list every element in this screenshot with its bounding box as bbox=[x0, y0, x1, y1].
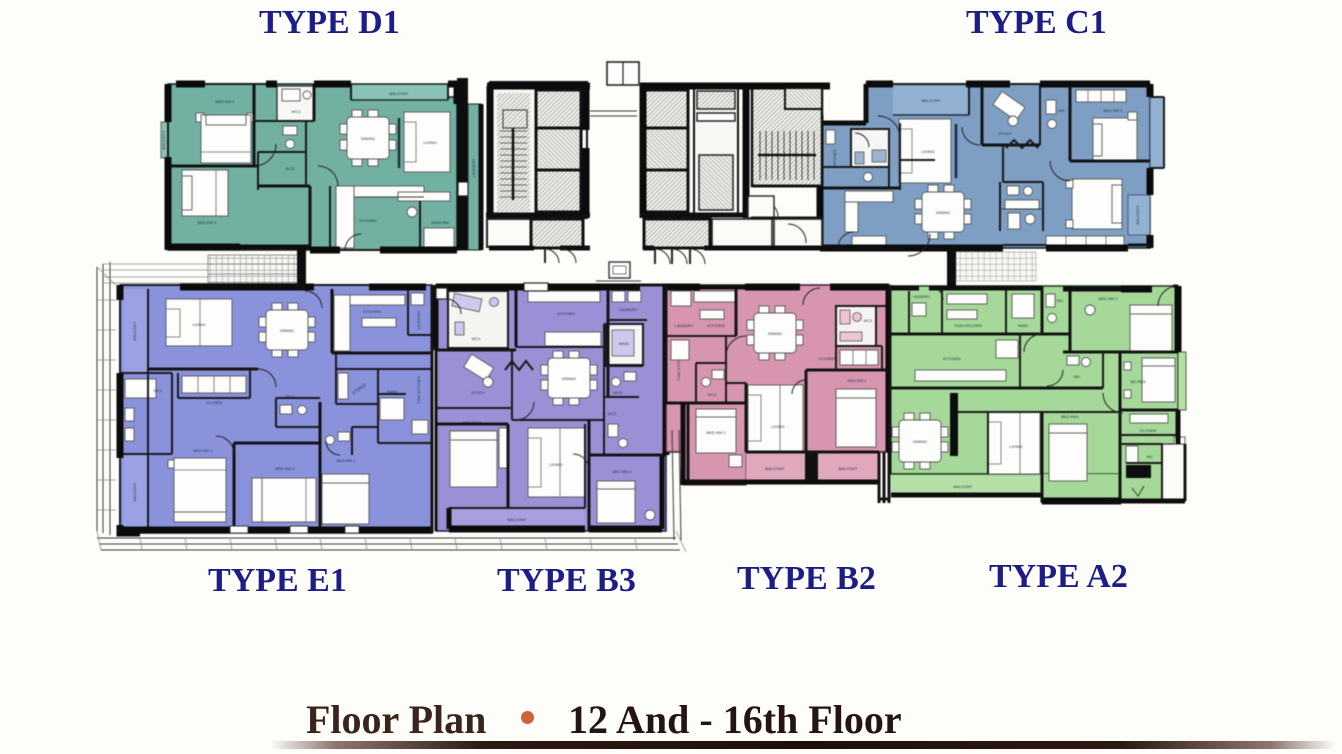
svg-text:WC2: WC2 bbox=[708, 392, 718, 397]
svg-text:DINING: DINING bbox=[361, 136, 375, 141]
svg-text:DINING: DINING bbox=[936, 210, 950, 215]
svg-text:WC2: WC2 bbox=[608, 411, 618, 416]
svg-text:BED RM 1: BED RM 1 bbox=[194, 448, 214, 453]
svg-text:WC: WC bbox=[1059, 108, 1066, 113]
svg-text:THAI KITCHEN: THAI KITCHEN bbox=[954, 323, 982, 328]
svg-text:CLOSER: CLOSER bbox=[1140, 428, 1157, 433]
svg-text:WC1: WC1 bbox=[472, 336, 482, 341]
svg-text:LAUNDRY: LAUNDRY bbox=[618, 307, 637, 312]
svg-text:STUDY: STUDY bbox=[471, 390, 485, 395]
svg-text:BED RM 2: BED RM 2 bbox=[337, 458, 357, 463]
svg-text:CLOSER: CLOSER bbox=[206, 400, 223, 405]
svg-text:LIVING: LIVING bbox=[423, 140, 436, 145]
svg-text:WC: WC bbox=[1074, 374, 1081, 379]
svg-text:DINING: DINING bbox=[280, 328, 294, 333]
svg-text:BALCONY: BALCONY bbox=[132, 482, 137, 501]
svg-text:THAI KTCH: THAI KTCH bbox=[676, 359, 681, 380]
svg-text:KITCHEN: KITCHEN bbox=[557, 311, 575, 316]
svg-text:DINING: DINING bbox=[768, 331, 782, 336]
svg-text:BALCONY: BALCONY bbox=[132, 321, 137, 340]
svg-text:BD RM3: BD RM3 bbox=[1130, 379, 1146, 384]
svg-text:BED RM 2: BED RM 2 bbox=[198, 220, 218, 225]
svg-text:BED RM 1: BED RM 1 bbox=[848, 378, 868, 383]
svg-text:KITCHEN: KITCHEN bbox=[832, 149, 837, 167]
svg-text:BED RM 2: BED RM 2 bbox=[1104, 108, 1124, 113]
svg-text:BALCONY: BALCONY bbox=[838, 466, 857, 471]
svg-text:LIVING: LIVING bbox=[1009, 444, 1022, 449]
svg-text:LIVING: LIVING bbox=[921, 149, 934, 154]
svg-text:WC2: WC2 bbox=[286, 166, 296, 171]
svg-text:LIVING: LIVING bbox=[192, 322, 205, 327]
svg-text:KITCHEN: KITCHEN bbox=[359, 218, 377, 223]
svg-text:WC: WC bbox=[1057, 298, 1064, 303]
svg-text:LAUNDRY: LAUNDRY bbox=[471, 158, 476, 177]
svg-text:LAUNDRY: LAUNDRY bbox=[674, 323, 693, 328]
svg-text:DINING: DINING bbox=[913, 439, 927, 444]
svg-text:BALCONY: BALCONY bbox=[389, 91, 408, 96]
svg-text:BALCONY: BALCONY bbox=[953, 484, 972, 489]
svg-text:BED RM 2: BED RM 2 bbox=[1099, 296, 1119, 301]
svg-text:DINING: DINING bbox=[562, 376, 576, 381]
svg-text:KITCHEN: KITCHEN bbox=[363, 309, 381, 314]
svg-text:BALCONY: BALCONY bbox=[1135, 205, 1140, 224]
svg-text:BED RM 2: BED RM 2 bbox=[613, 469, 633, 474]
svg-text:BED RM 2: BED RM 2 bbox=[707, 430, 727, 435]
svg-text:MAID: MAID bbox=[1018, 323, 1028, 328]
svg-text:LIVING: LIVING bbox=[771, 424, 784, 429]
svg-text:WC1: WC1 bbox=[864, 318, 874, 323]
svg-text:BED RM 3: BED RM 3 bbox=[276, 466, 296, 471]
svg-text:WC1: WC1 bbox=[154, 388, 164, 393]
svg-text:MAID: MAID bbox=[619, 341, 629, 346]
svg-text:WC: WC bbox=[1147, 454, 1154, 459]
svg-text:WC1: WC1 bbox=[292, 109, 302, 114]
svg-text:MAID RM: MAID RM bbox=[431, 220, 448, 225]
svg-text:CLOSER: CLOSER bbox=[819, 356, 836, 361]
svg-text:BALCONY: BALCONY bbox=[921, 98, 940, 103]
svg-text:WCK: WCK bbox=[613, 390, 623, 395]
svg-text:LAUNDRY: LAUNDRY bbox=[416, 310, 421, 329]
svg-text:KITCHEN: KITCHEN bbox=[943, 356, 961, 361]
svg-text:KITCHEN: KITCHEN bbox=[707, 323, 725, 328]
svg-text:STUDY: STUDY bbox=[998, 131, 1012, 136]
svg-text:BALCONY: BALCONY bbox=[161, 130, 166, 149]
svg-text:THAI KITCHEN: THAI KITCHEN bbox=[416, 376, 421, 404]
svg-text:LIVING: LIVING bbox=[549, 462, 562, 467]
svg-text:BALCONY: BALCONY bbox=[765, 466, 784, 471]
svg-text:BED RM 1: BED RM 1 bbox=[216, 99, 236, 104]
svg-text:BED RM1: BED RM1 bbox=[1061, 414, 1080, 419]
svg-text:BALCONY: BALCONY bbox=[507, 517, 526, 522]
svg-text:HUNDRY: HUNDRY bbox=[913, 294, 930, 299]
